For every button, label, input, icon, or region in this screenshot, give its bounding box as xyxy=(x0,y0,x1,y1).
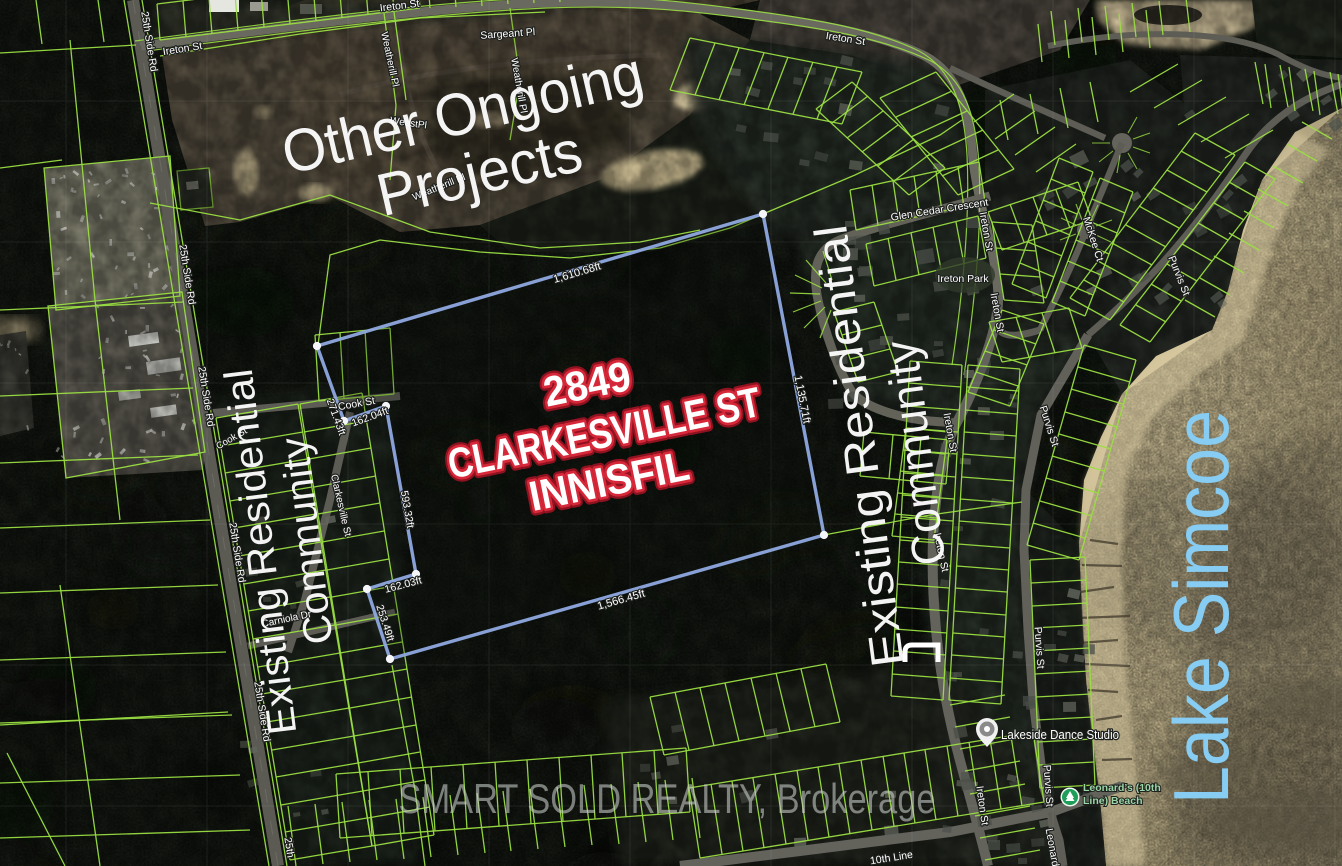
svg-text:Lakeside Dance Studio: Lakeside Dance Studio xyxy=(1001,728,1119,742)
svg-text:SMART SOLD REALTY, Brokerage: SMART SOLD REALTY, Brokerage xyxy=(399,775,936,822)
svg-text:Ireton Park: Ireton Park xyxy=(937,273,989,285)
svg-text:Lake Simcoe: Lake Simcoe xyxy=(1157,410,1245,804)
svg-text:Leonard’s (10th: Leonard’s (10th xyxy=(1083,782,1161,794)
svg-text:Line) Beach: Line) Beach xyxy=(1083,795,1143,807)
